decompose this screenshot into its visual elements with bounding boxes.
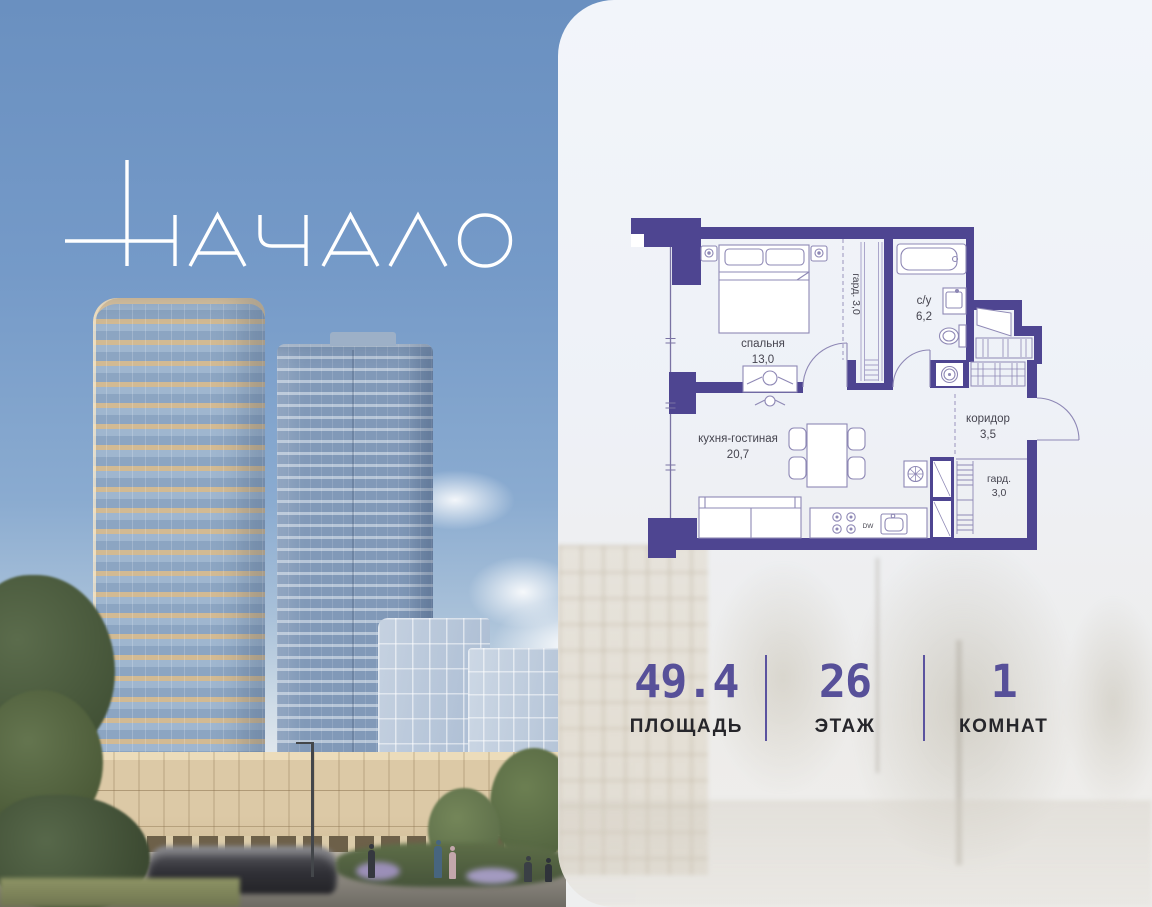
stat-area: 49.4 ПЛОЩАДЬ bbox=[608, 659, 765, 738]
glass-tower-seam bbox=[352, 350, 354, 790]
stat-floor: 26 ЭТАЖ bbox=[767, 659, 924, 738]
plan-walls bbox=[631, 218, 1042, 558]
nachalo-logo bbox=[62, 156, 522, 286]
logo-text: НАЧАЛО bbox=[0, 0, 1, 1]
logo-letters bbox=[65, 160, 511, 266]
flower-bed bbox=[466, 868, 518, 884]
bedroom-furniture bbox=[701, 245, 827, 406]
stat-rooms: 1 КОМНАТ bbox=[925, 659, 1082, 738]
listing-card: НАЧАЛО bbox=[0, 0, 1152, 907]
floor-value: 26 bbox=[767, 659, 924, 704]
pedestrian bbox=[449, 852, 456, 879]
label-bathroom: с/у bbox=[917, 295, 932, 307]
pedestrian bbox=[434, 846, 442, 878]
label-dishwasher: DW bbox=[863, 523, 875, 530]
label-corridor-area: 3,5 bbox=[980, 429, 996, 441]
floor-plan: спальня 13,0 гард. 3,0 с/у 6,2 кухня-гос… bbox=[625, 212, 1095, 562]
area-label: ПЛОЩАДЬ bbox=[608, 716, 765, 738]
label-garderobe-area: 3,0 bbox=[992, 487, 1007, 499]
street-lamp bbox=[311, 742, 314, 877]
rooms-value: 1 bbox=[925, 659, 1082, 704]
label-bedroom-area: 13,0 bbox=[752, 354, 774, 366]
area-value: 49.4 bbox=[608, 659, 765, 704]
label-bathroom-area: 6,2 bbox=[916, 311, 932, 323]
ghost-ground bbox=[558, 800, 1152, 907]
pedestrian bbox=[524, 862, 532, 882]
pedestrian bbox=[545, 864, 552, 882]
grass bbox=[0, 878, 240, 907]
label-garderobe: гард. bbox=[987, 473, 1011, 485]
glass-tower-crown bbox=[330, 332, 396, 346]
bronze-band-tower bbox=[93, 298, 265, 790]
label-corridor: коридор bbox=[966, 413, 1010, 425]
label-bedroom: спальня bbox=[741, 338, 785, 350]
wardrobe-rails bbox=[861, 242, 882, 381]
label-kitchen-area: 20,7 bbox=[727, 449, 749, 461]
apartment-stats: 49.4 ПЛОЩАДЬ 26 ЭТАЖ 1 КОМНАТ bbox=[608, 655, 1082, 741]
rooms-label: КОМНАТ bbox=[925, 716, 1082, 738]
flower-bed bbox=[356, 862, 400, 880]
info-panel: спальня 13,0 гард. 3,0 с/у 6,2 кухня-гос… bbox=[558, 0, 1152, 907]
label-kitchen: кухня-гостиная bbox=[698, 433, 778, 445]
pedestrian bbox=[368, 850, 375, 878]
label-wardrobe-strip: гард. 3,0 bbox=[850, 273, 862, 315]
floor-label: ЭТАЖ bbox=[767, 716, 924, 738]
